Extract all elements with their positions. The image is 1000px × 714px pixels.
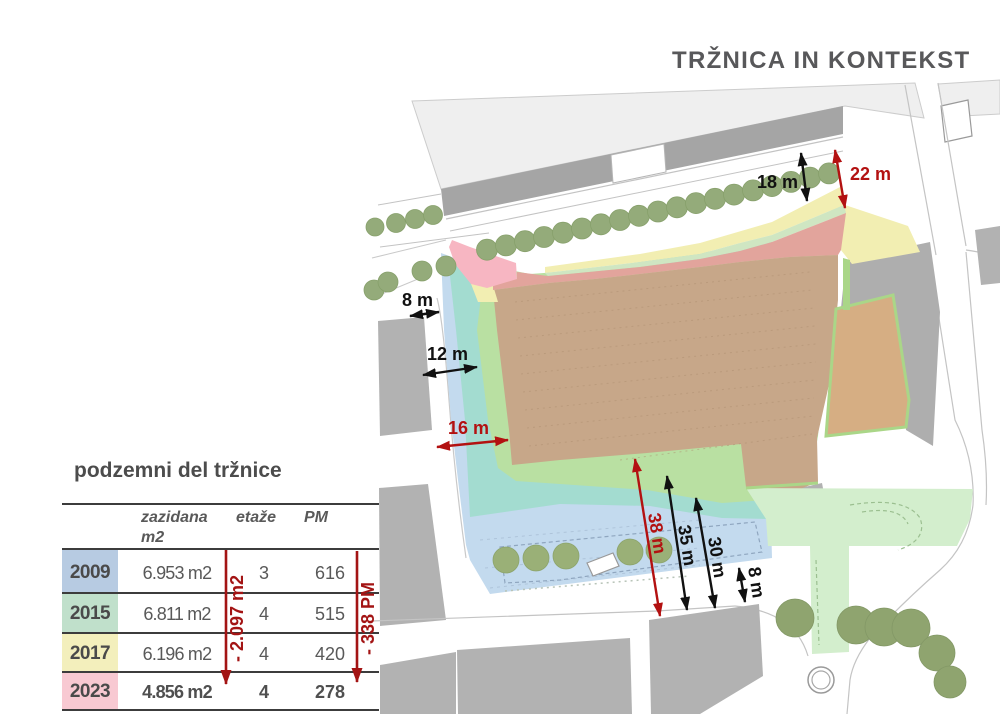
svg-text:- 2.097 m2: - 2.097 m2 (227, 575, 247, 662)
svg-text:- 338 PM: - 338 PM (358, 582, 378, 655)
